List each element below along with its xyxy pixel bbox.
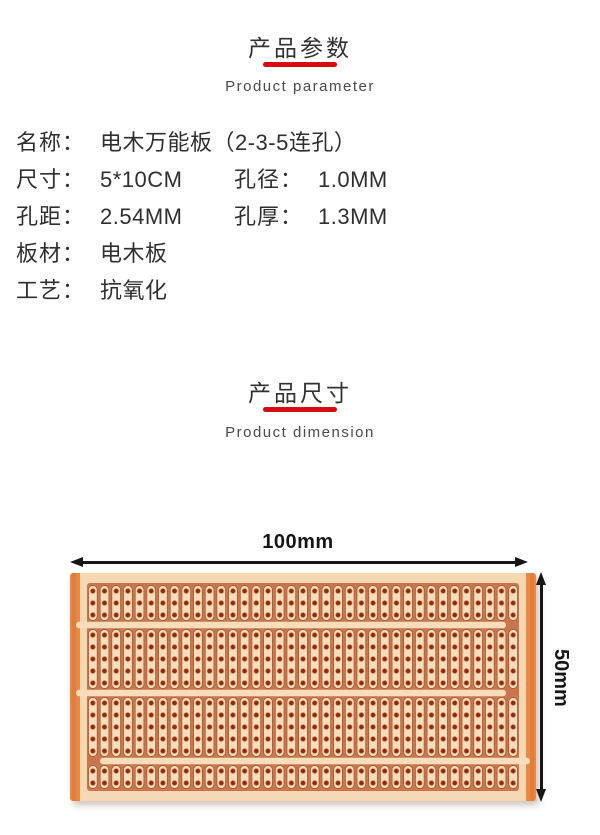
width-dimension-arrow bbox=[82, 561, 516, 564]
spec-label: 孔厚： bbox=[234, 198, 318, 235]
spec-label: 板材： bbox=[16, 235, 100, 272]
spec-pair: 板材：电木板 bbox=[16, 235, 234, 272]
product-info-page: 产品参数 Product parameter 名称：电木万能板（2-3-5连孔）… bbox=[0, 0, 600, 835]
dimension-title-en: Product dimension bbox=[0, 424, 600, 441]
arrow-bottom-head-icon bbox=[536, 789, 546, 802]
height-dimension-arrow bbox=[540, 584, 543, 790]
spec-label: 尺寸： bbox=[16, 161, 100, 198]
spec-value: 电木万能板（2-3-5连孔） bbox=[100, 124, 356, 161]
spec-value: 1.0MM bbox=[318, 161, 388, 198]
spec-pair: 尺寸：5*10CM bbox=[16, 161, 234, 198]
spec-label: 孔径： bbox=[234, 161, 318, 198]
pcb-board-image bbox=[70, 573, 536, 801]
spec-label: 孔距： bbox=[16, 198, 100, 235]
arrow-right-head-icon bbox=[515, 557, 528, 567]
spec-row: 板材：电木板 bbox=[16, 235, 592, 272]
spec-row: 尺寸：5*10CM孔径：1.0MM bbox=[16, 161, 592, 198]
params-title-en: Product parameter bbox=[0, 78, 600, 95]
params-title-underline bbox=[263, 62, 337, 67]
dimension-title-zh: 产品尺寸 bbox=[0, 374, 600, 408]
width-dimension-label: 100mm bbox=[70, 531, 526, 554]
spec-row: 名称：电木万能板（2-3-5连孔） bbox=[16, 124, 592, 161]
spec-pair: 名称：电木万能板（2-3-5连孔） bbox=[16, 124, 356, 161]
spec-row: 工艺：抗氧化 bbox=[16, 272, 592, 309]
spec-value: 电木板 bbox=[100, 235, 168, 272]
spec-row: 孔距：2.54MM孔厚：1.3MM bbox=[16, 198, 592, 235]
height-dimension-label: 50mm bbox=[550, 649, 572, 703]
arrow-top-head-icon bbox=[536, 572, 546, 585]
spec-label: 名称： bbox=[16, 124, 100, 161]
spec-value: 抗氧化 bbox=[100, 272, 168, 309]
spec-pair: 孔距：2.54MM bbox=[16, 198, 234, 235]
pcb-board-svg bbox=[70, 573, 536, 801]
spec-list: 名称：电木万能板（2-3-5连孔）尺寸：5*10CM孔径：1.0MM孔距：2.5… bbox=[16, 124, 592, 309]
dimension-title-underline bbox=[263, 407, 337, 412]
spec-value: 5*10CM bbox=[100, 161, 182, 198]
spec-pair: 工艺：抗氧化 bbox=[16, 272, 234, 309]
arrow-left-head-icon bbox=[70, 557, 83, 567]
spec-value: 1.3MM bbox=[318, 198, 388, 235]
spec-value: 2.54MM bbox=[100, 198, 182, 235]
params-title-zh: 产品参数 bbox=[0, 29, 600, 63]
spec-pair: 孔厚：1.3MM bbox=[234, 198, 388, 235]
spec-pair: 孔径：1.0MM bbox=[234, 161, 388, 198]
spec-label: 工艺： bbox=[16, 272, 100, 309]
